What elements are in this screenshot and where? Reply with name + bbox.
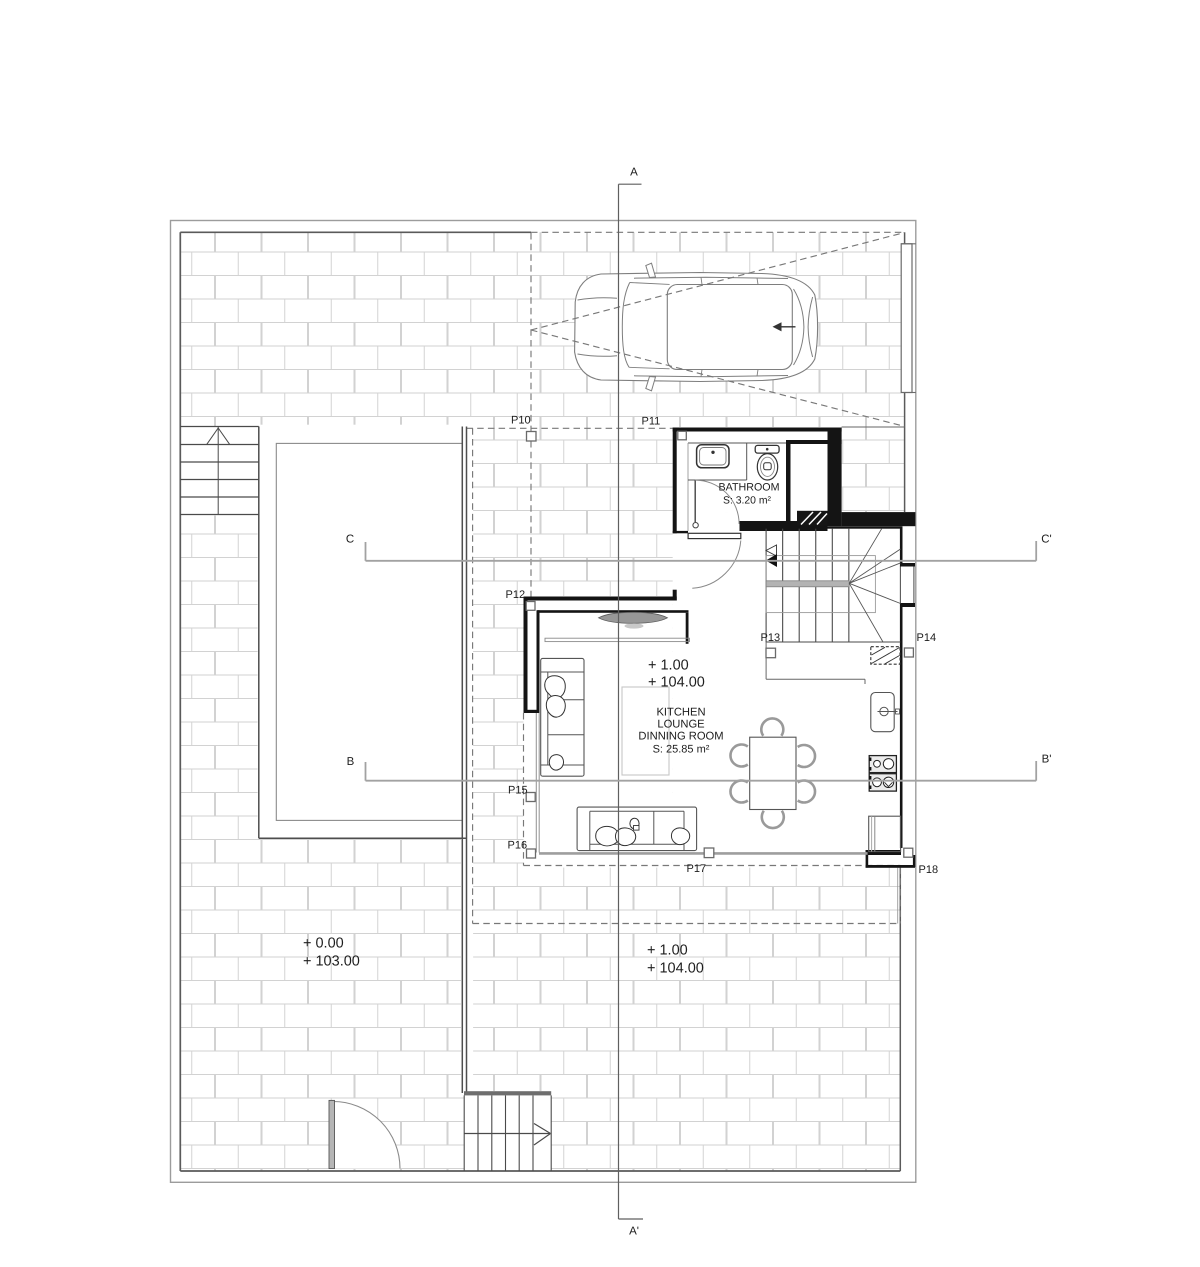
svg-text:P11: P11 — [642, 416, 661, 428]
svg-text:P15: P15 — [508, 785, 528, 797]
svg-text:A: A — [630, 167, 638, 179]
svg-text:DINNING ROOM: DINNING ROOM — [638, 731, 723, 743]
svg-text:LOUNGE: LOUNGE — [657, 719, 704, 731]
svg-text:C': C' — [1041, 534, 1052, 546]
svg-text:+ 0.00: + 0.00 — [303, 936, 344, 952]
svg-text:B': B' — [1042, 754, 1052, 766]
svg-text:BATHROOM: BATHROOM — [719, 482, 780, 494]
svg-text:P13: P13 — [761, 632, 781, 644]
svg-text:B: B — [347, 756, 355, 768]
svg-text:P12: P12 — [506, 589, 526, 601]
svg-text:+ 104.00: + 104.00 — [648, 675, 705, 691]
svg-text:A': A' — [629, 1226, 639, 1238]
svg-text:+ 104.00: + 104.00 — [647, 961, 704, 977]
svg-text:+ 103.00: + 103.00 — [303, 954, 360, 970]
svg-text:C: C — [346, 534, 354, 546]
svg-text:S: 3.20 m²: S: 3.20 m² — [723, 496, 771, 507]
svg-text:P17: P17 — [687, 863, 707, 875]
svg-text:S: 25.85 m²: S: 25.85 m² — [653, 744, 710, 756]
svg-text:P16: P16 — [508, 840, 528, 852]
svg-text:+ 1.00: + 1.00 — [648, 658, 689, 674]
svg-text:+ 1.00: + 1.00 — [647, 943, 688, 959]
svg-text:P14: P14 — [917, 632, 937, 644]
svg-text:KITCHEN: KITCHEN — [656, 707, 705, 719]
svg-text:P18: P18 — [919, 864, 939, 876]
svg-text:P10: P10 — [511, 415, 531, 427]
